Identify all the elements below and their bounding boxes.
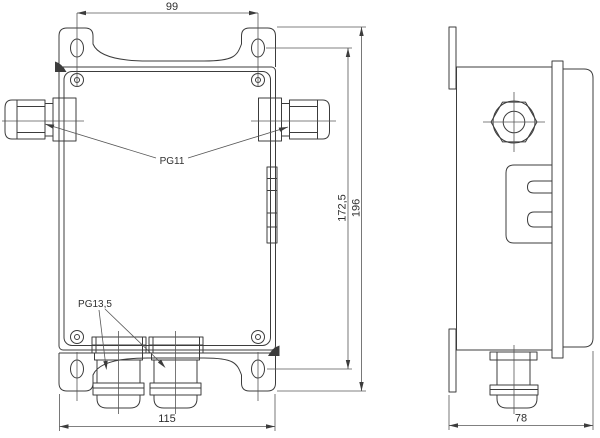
seam-marks	[55, 62, 280, 357]
dim-top-hole-spacing: 99	[77, 1, 258, 87]
dim-overall-height: 196	[277, 27, 366, 391]
hinge-slot	[528, 212, 553, 227]
side-body	[449, 27, 593, 392]
leader-arrow	[45, 124, 54, 129]
dim-depth: 78	[449, 351, 593, 430]
cable-gland-bottom-right	[149, 331, 203, 414]
label-pg11: PG11	[45, 124, 288, 167]
dim-text-78: 78	[515, 413, 527, 425]
bracket-tab-top	[449, 27, 456, 89]
technical-drawing: PG11	[0, 0, 600, 438]
cable-gland-left	[2, 98, 84, 141]
pg11-label: PG11	[160, 156, 185, 167]
leader-arrow	[279, 127, 288, 132]
leader-arrow	[103, 361, 107, 370]
front-view: PG11	[2, 28, 336, 414]
dim-base-width: 115	[60, 394, 276, 431]
dim-text-115: 115	[158, 413, 176, 425]
top-mounting-bracket	[59, 28, 276, 67]
enclosure-front	[55, 62, 280, 357]
side-view	[449, 27, 593, 414]
dim-text-172-5: 172,5	[337, 194, 349, 222]
cable-gland-bottom-side	[490, 345, 538, 414]
hinge-plate-side	[506, 165, 552, 243]
bracket-tab-bottom	[449, 329, 456, 392]
hinge-slot	[528, 181, 553, 193]
pg13-5-label: PG13,5	[78, 299, 112, 310]
flange-strip	[552, 61, 563, 358]
bottom-mounting-bracket	[59, 352, 276, 401]
hex-gland-end-view	[483, 92, 545, 152]
lid-side	[563, 69, 593, 347]
dim-text-99: 99	[166, 1, 178, 13]
body-outline	[457, 67, 553, 350]
dim-mounting-height: 172,5	[266, 48, 352, 369]
cable-gland-bottom-left	[92, 331, 146, 414]
dim-text-196: 196	[351, 199, 363, 217]
